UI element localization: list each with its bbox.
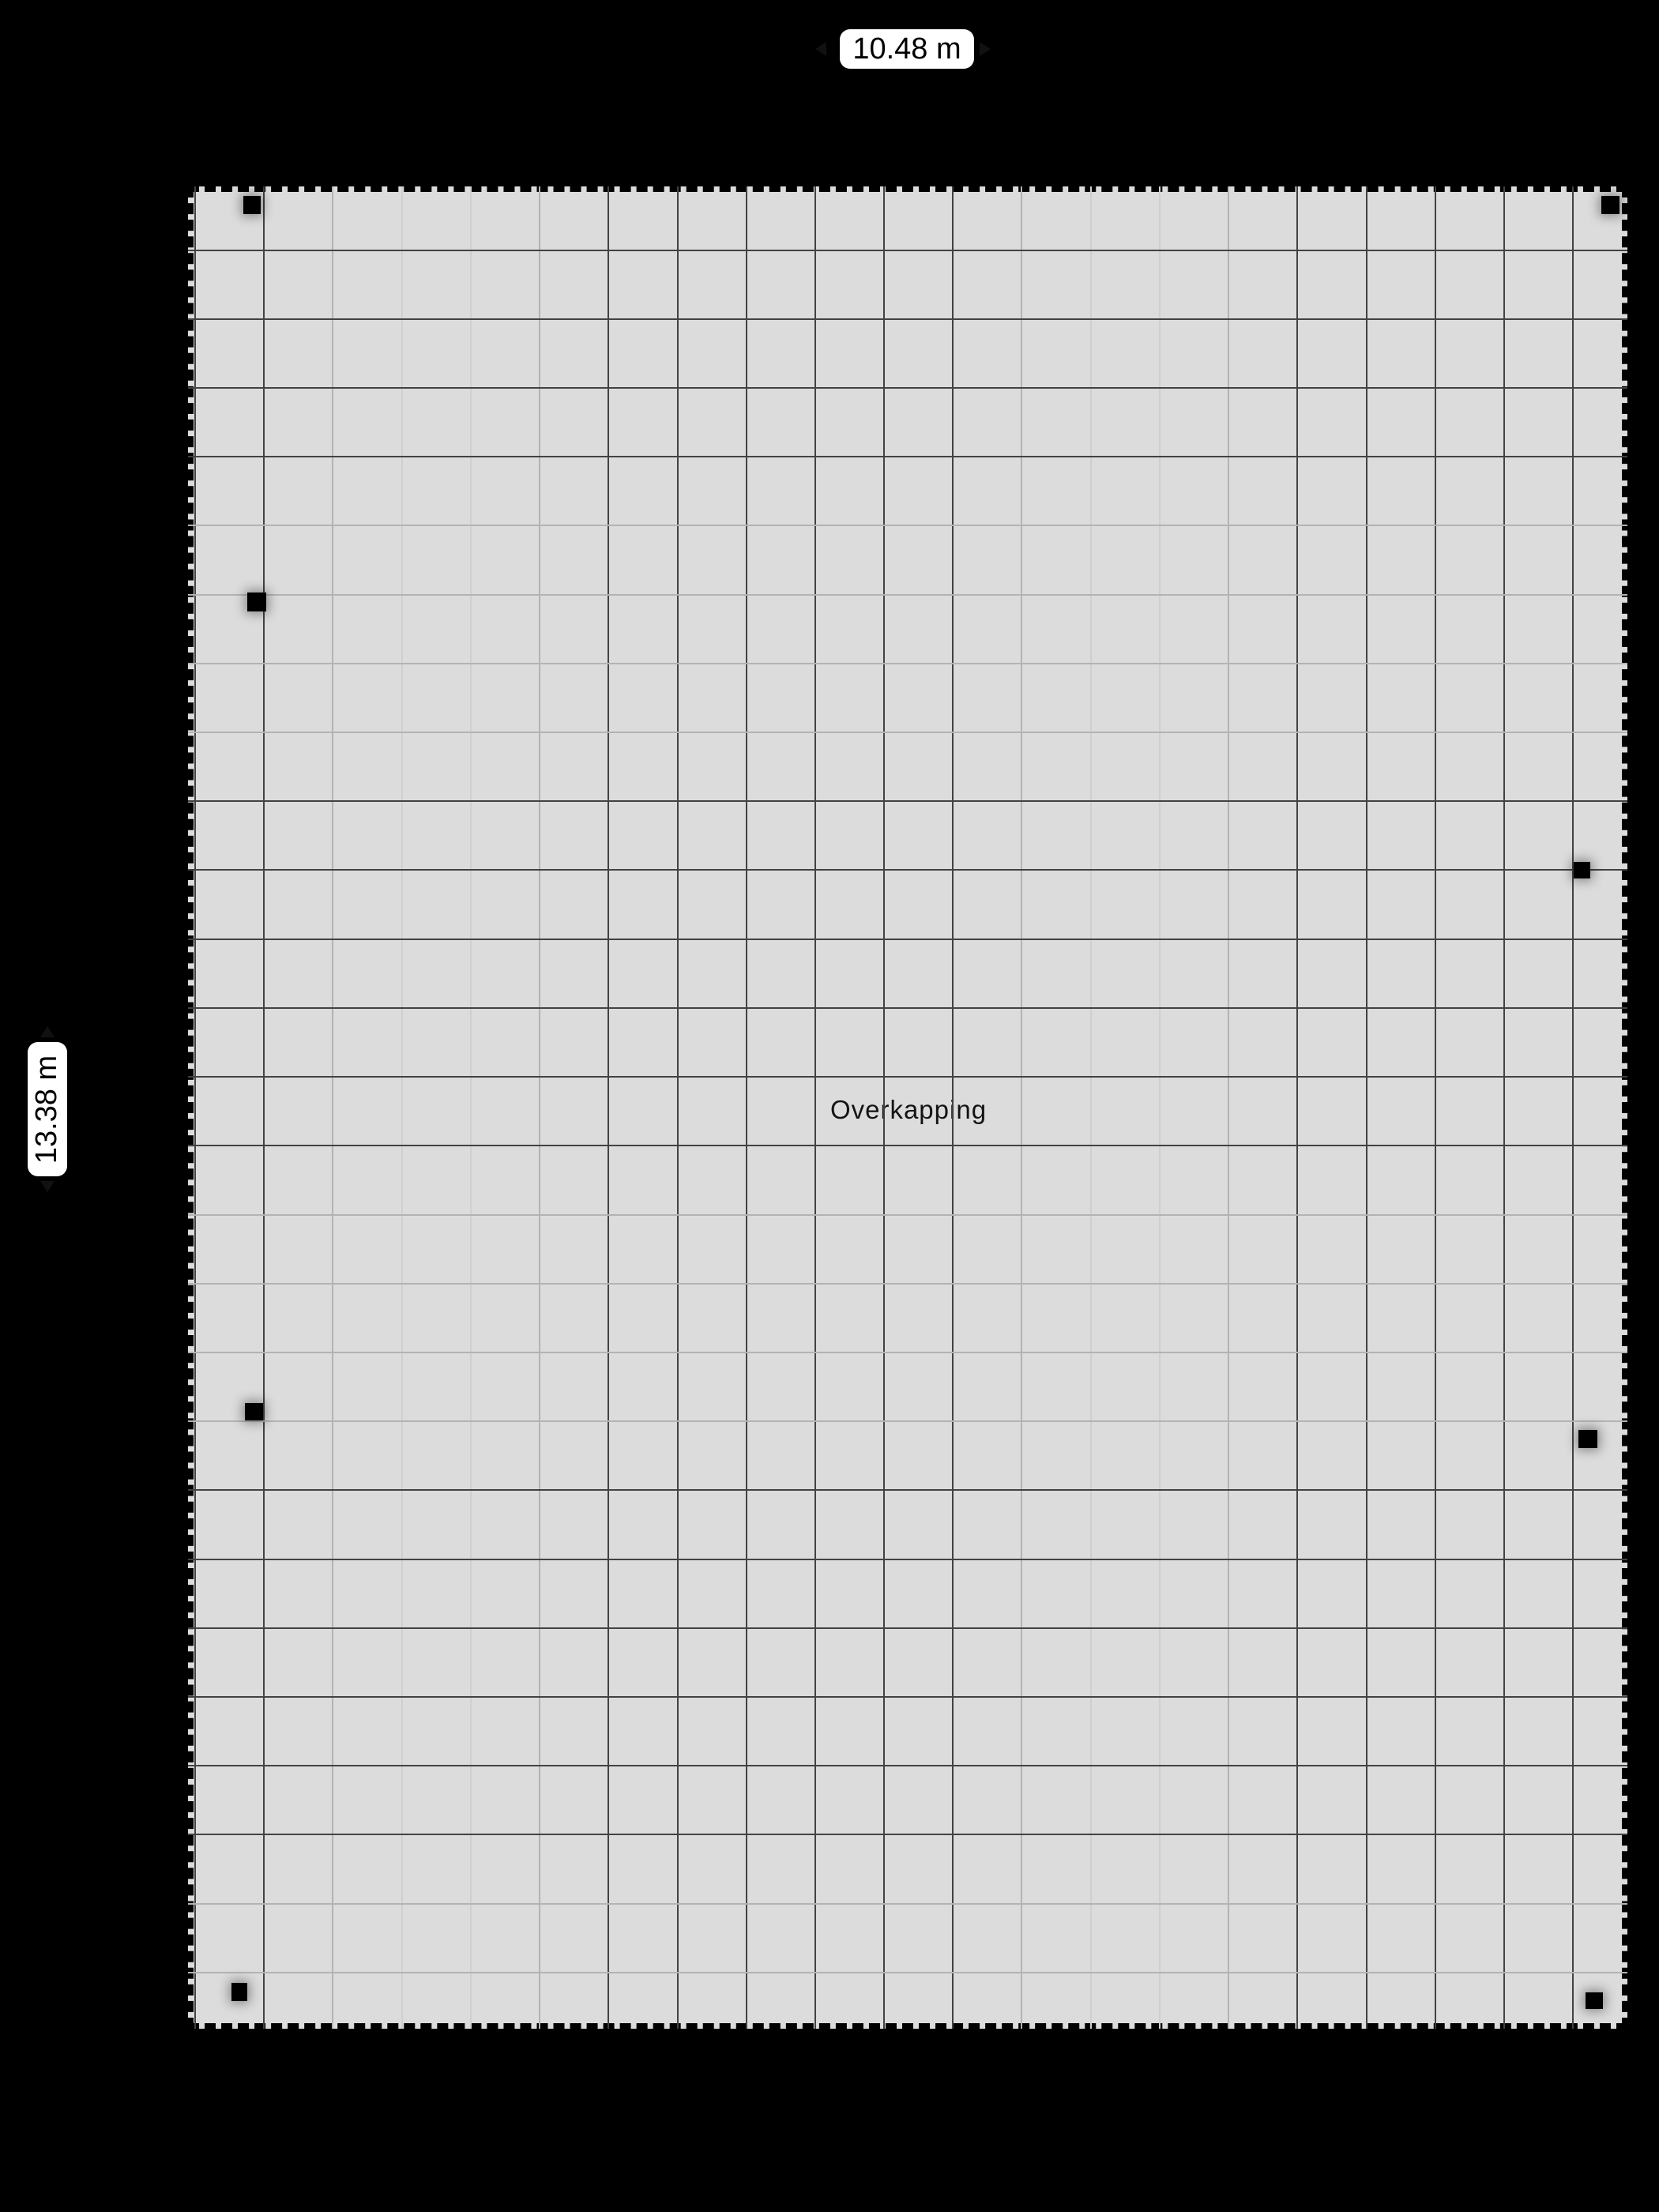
width-dimension-value: 10.48 m: [852, 32, 961, 66]
rafter-line-vertical: [1090, 186, 1092, 2029]
batten-line-horizontal: [188, 1214, 1627, 1216]
batten-line-horizontal: [188, 1076, 1627, 1078]
rafter-line-vertical: [1366, 186, 1367, 2029]
batten-line-horizontal: [188, 1489, 1627, 1491]
batten-line-horizontal: [188, 663, 1627, 664]
height-dim-arrow-up: [40, 1026, 55, 1037]
rafter-line-vertical: [1572, 186, 1574, 2029]
width-dimension-chip[interactable]: 10.48 m: [840, 29, 974, 69]
rafter-line-vertical: [952, 186, 954, 2029]
rafter-line-vertical: [401, 186, 403, 2029]
batten-line-horizontal: [188, 318, 1627, 320]
post-marker: [1586, 1992, 1603, 2009]
plan-title: Overkapping: [830, 1095, 987, 1125]
post-marker: [231, 1983, 247, 2001]
height-dimension-value: 13.38 m: [31, 1055, 65, 1163]
page-background: { "page": { "background": "#000000", "wi…: [0, 0, 1659, 2212]
batten-line-horizontal: [188, 1903, 1627, 1905]
batten-line-horizontal: [188, 1834, 1627, 1835]
batten-line-horizontal: [188, 594, 1627, 596]
batten-line-horizontal: [188, 1145, 1627, 1146]
rafter-line-vertical: [1296, 186, 1298, 2029]
rafter-line-vertical: [677, 186, 679, 2029]
rafter-line-vertical: [332, 186, 333, 2029]
batten-line-horizontal: [188, 1627, 1627, 1629]
width-dim-arrow-left: [815, 42, 826, 56]
post-marker: [1574, 862, 1590, 878]
batten-line-horizontal: [188, 869, 1627, 871]
batten-line-horizontal: [188, 939, 1627, 940]
rafter-line-vertical: [1159, 186, 1161, 2029]
batten-line-horizontal: [188, 1352, 1627, 1353]
post-marker: [245, 1403, 263, 1420]
floor-plan[interactable]: Overkapping: [188, 186, 1627, 2029]
batten-line-horizontal: [188, 1420, 1627, 1422]
batten-line-horizontal: [188, 387, 1627, 389]
width-dim-arrow-right: [980, 42, 991, 56]
batten-line-horizontal: [188, 1283, 1627, 1285]
rafter-line-vertical: [1228, 186, 1229, 2029]
rafter-line-vertical: [608, 186, 609, 2029]
rafter-line-vertical: [539, 186, 540, 2029]
height-dim-arrow-down: [40, 1181, 55, 1192]
rafter-line-vertical: [194, 186, 196, 2029]
batten-line-horizontal: [188, 1765, 1627, 1766]
batten-line-horizontal: [188, 1972, 1627, 1973]
batten-line-horizontal: [188, 1696, 1627, 1698]
rafter-line-vertical: [814, 186, 816, 2029]
batten-line-horizontal: [188, 250, 1627, 251]
batten-line-horizontal: [188, 456, 1627, 457]
rafter-line-vertical: [470, 186, 472, 2029]
batten-line-horizontal: [188, 800, 1627, 802]
post-marker: [247, 592, 266, 611]
post-marker: [243, 196, 261, 214]
rafter-line-vertical: [746, 186, 747, 2029]
batten-line-horizontal: [188, 732, 1627, 733]
post-marker: [1601, 196, 1619, 214]
rafter-line-vertical: [883, 186, 885, 2029]
height-dimension-chip[interactable]: 13.38 m: [28, 1042, 67, 1176]
rafter-line-vertical: [1021, 186, 1022, 2029]
rafter-line-vertical: [1503, 186, 1505, 2029]
batten-line-horizontal: [188, 525, 1627, 526]
rafter-line-vertical: [263, 186, 265, 2029]
batten-line-horizontal: [188, 1007, 1627, 1009]
batten-line-horizontal: [188, 1559, 1627, 1560]
rafter-line-vertical: [1435, 186, 1436, 2029]
post-marker: [1578, 1430, 1597, 1448]
